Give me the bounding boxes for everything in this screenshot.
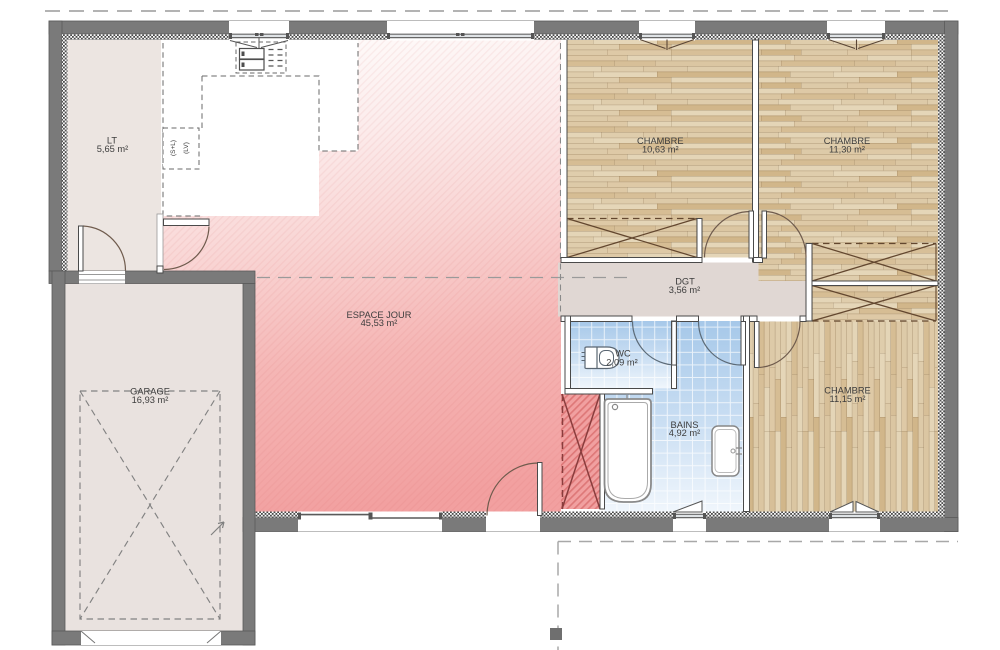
svg-text:16,93 m²: 16,93 m² bbox=[132, 395, 169, 405]
svg-text:11,15 m²: 11,15 m² bbox=[830, 394, 866, 404]
svg-text:2,09 m²: 2,09 m² bbox=[606, 358, 638, 368]
svg-text:45,53 m²: 45,53 m² bbox=[361, 318, 398, 328]
svg-text:3,56 m²: 3,56 m² bbox=[669, 285, 701, 295]
svg-text:11,30 m²: 11,30 m² bbox=[829, 144, 865, 154]
svg-text:(S+L): (S+L) bbox=[170, 140, 177, 156]
svg-text:10,63 m²: 10,63 m² bbox=[642, 144, 679, 154]
svg-text:5,65 m²: 5,65 m² bbox=[97, 144, 129, 154]
svg-text:4,92 m²: 4,92 m² bbox=[669, 428, 701, 438]
svg-text:(LV): (LV) bbox=[183, 142, 190, 154]
